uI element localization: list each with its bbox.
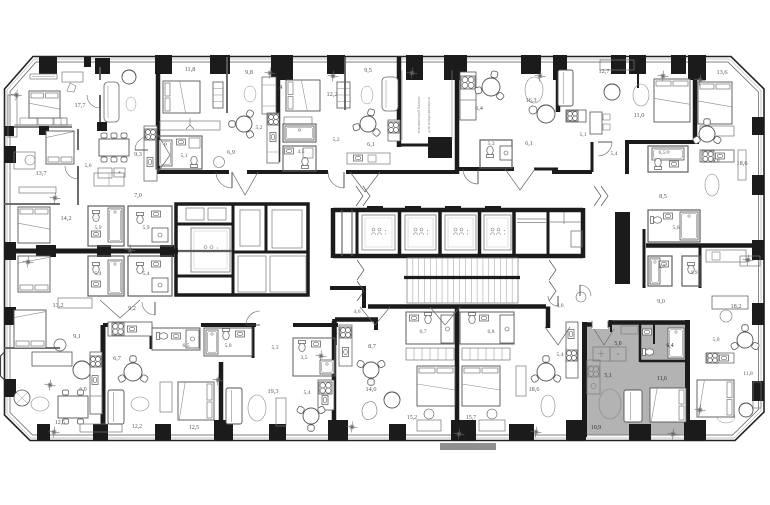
svg-text:12,2: 12,2: [132, 424, 142, 430]
svg-text:5,1: 5,1: [181, 153, 188, 159]
svg-text:12,6: 12,6: [55, 420, 65, 426]
svg-text:12,5: 12,5: [189, 425, 199, 431]
svg-text:14,0: 14,0: [365, 386, 376, 393]
svg-text:9,2: 9,2: [128, 305, 136, 312]
svg-text:8,7: 8,7: [368, 343, 376, 350]
svg-text:18,2: 18,2: [730, 303, 741, 310]
svg-text:5,6: 5,6: [85, 163, 92, 169]
svg-text:5,0: 5,0: [614, 341, 621, 347]
svg-text:5,9: 5,9: [95, 225, 102, 231]
svg-text:5,1: 5,1: [580, 132, 587, 138]
svg-text:9,5: 9,5: [364, 67, 372, 74]
svg-text:5,0: 5,0: [225, 343, 232, 349]
svg-text:15,2: 15,2: [407, 415, 417, 421]
svg-text:11,8: 11,8: [743, 371, 753, 377]
svg-text:4,6: 4,6: [354, 309, 361, 315]
svg-text:11,0: 11,0: [634, 112, 645, 119]
svg-text:для кондиционеров: для кондиционеров: [426, 97, 431, 132]
svg-text:6,9: 6,9: [227, 149, 235, 156]
svg-text:13,7: 13,7: [35, 170, 46, 177]
svg-text:5,0: 5,0: [713, 337, 720, 343]
svg-text:5,6: 5,6: [673, 225, 680, 231]
svg-text:5,9: 5,9: [143, 225, 150, 231]
svg-text:5,2: 5,2: [333, 137, 340, 143]
svg-text:8,5: 8,5: [659, 193, 667, 200]
svg-text:15,7: 15,7: [466, 415, 476, 421]
svg-text:5,4: 5,4: [557, 352, 564, 358]
svg-text:6,7: 6,7: [420, 329, 427, 335]
svg-text:13,6: 13,6: [716, 69, 727, 76]
svg-text:6,4: 6,4: [475, 105, 484, 112]
svg-text:9,1: 9,1: [73, 333, 81, 340]
svg-text:7,0: 7,0: [134, 192, 142, 199]
svg-text:1,9: 1,9: [691, 270, 698, 276]
svg-text:6,7: 6,7: [113, 355, 121, 362]
svg-text:5,4: 5,4: [611, 151, 618, 157]
svg-text:9,3: 9,3: [134, 151, 142, 158]
svg-text:5,4: 5,4: [143, 271, 150, 277]
svg-text:3,7: 3,7: [659, 264, 666, 270]
svg-text:5,1: 5,1: [604, 373, 611, 379]
svg-text:18,6: 18,6: [528, 386, 539, 393]
svg-text:5,0: 5,0: [713, 158, 720, 164]
svg-text:6,1: 6,1: [367, 141, 375, 148]
svg-text:4,5: 4,5: [298, 149, 305, 155]
svg-text:9,8: 9,8: [245, 69, 253, 76]
svg-text:5,2: 5,2: [256, 125, 263, 131]
svg-text:10,9: 10,9: [591, 425, 601, 431]
svg-text:5,4: 5,4: [95, 271, 102, 277]
svg-text:19,3: 19,3: [267, 388, 278, 395]
svg-text:3,5: 3,5: [301, 355, 308, 361]
svg-text:17,7: 17,7: [74, 102, 85, 109]
svg-text:14,2: 14,2: [60, 215, 71, 222]
svg-text:9,0: 9,0: [657, 298, 665, 305]
svg-text:6,5: 6,5: [659, 150, 666, 156]
svg-text:5,3: 5,3: [272, 345, 279, 351]
svg-text:5,4: 5,4: [304, 390, 311, 396]
svg-text:11,8: 11,8: [185, 66, 196, 73]
svg-text:5,3: 5,3: [488, 141, 495, 147]
svg-text:6,8: 6,8: [488, 329, 495, 335]
svg-text:6,4: 6,4: [666, 343, 673, 349]
svg-text:6,1: 6,1: [525, 140, 533, 147]
svg-text:11,6: 11,6: [657, 376, 667, 382]
svg-text:технический балкон: технический балкон: [416, 96, 421, 134]
svg-text:6,5: 6,5: [183, 343, 190, 349]
svg-text:16,3: 16,3: [525, 97, 536, 104]
svg-text:12,2: 12,2: [326, 91, 337, 98]
